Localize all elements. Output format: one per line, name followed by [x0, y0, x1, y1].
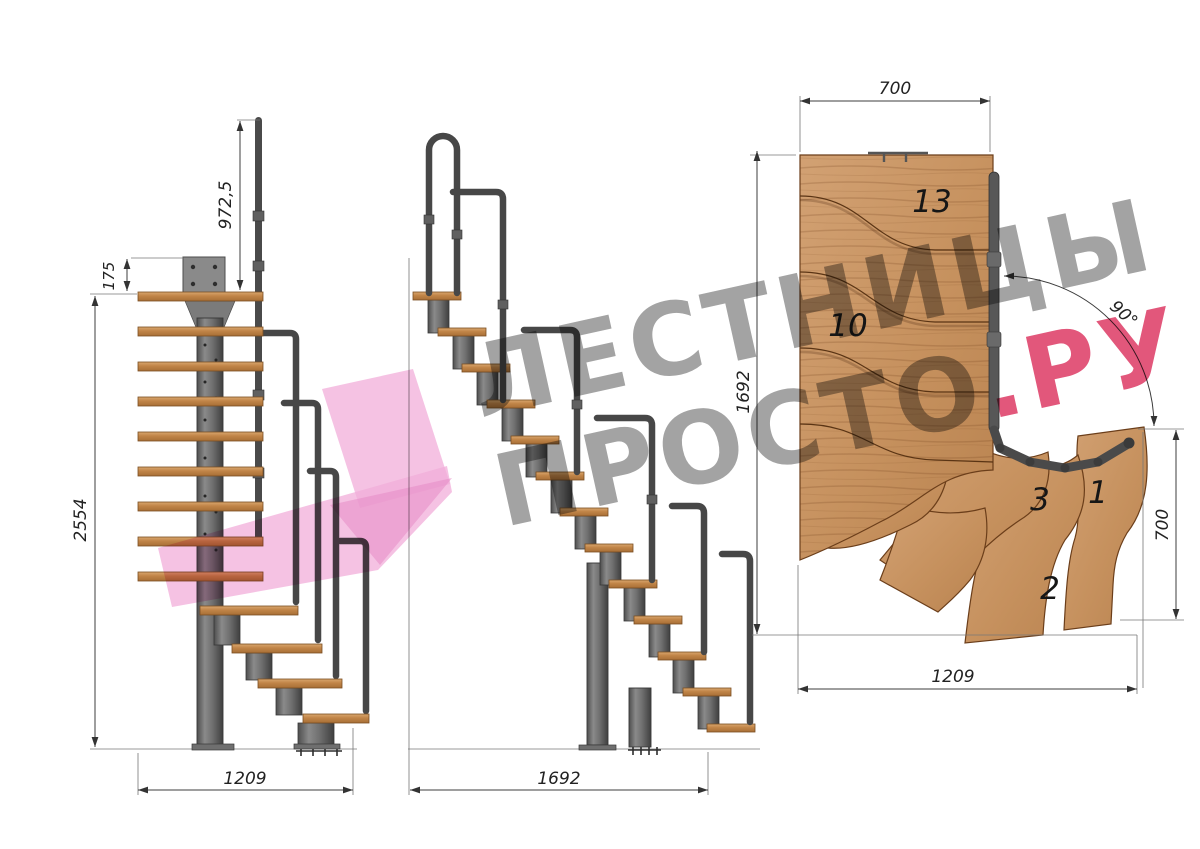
dim-label-2554: 2554: [71, 498, 91, 541]
front-elevation-view: 972,5 175 2554 1209: [71, 117, 369, 795]
dim-front-plate: 175: [100, 258, 184, 291]
stair-technical-drawing: 972,5 175 2554 1209: [0, 0, 1200, 849]
drawing-canvas: 972,5 175 2554 1209: [0, 0, 1200, 849]
dim-label-700-top: 700: [879, 79, 911, 99]
lower-steps-front: [200, 606, 369, 756]
step-label-1: 1: [1088, 475, 1108, 511]
dim-label-1209-front: 1209: [223, 769, 266, 789]
dim-label-1209-plan: 1209: [931, 667, 974, 687]
dim-label-1692-side: 1692: [537, 769, 580, 789]
dim-side-length: 1692: [410, 752, 708, 795]
dim-label-972-5: 972,5: [216, 181, 236, 230]
mounting-plate: [183, 257, 225, 294]
dim-plan-top-width: 700: [800, 79, 990, 152]
step-label-3: 3: [1030, 482, 1050, 518]
anchor-bolts: [296, 749, 342, 756]
step-label-2: 2: [1040, 571, 1060, 607]
dim-label-175: 175: [100, 262, 118, 291]
support-columns-side: [579, 563, 661, 755]
dim-label-700-right: 700: [1153, 509, 1173, 541]
step-label-13: 13: [912, 184, 951, 220]
dim-front-total-height: 2554: [71, 294, 137, 747]
